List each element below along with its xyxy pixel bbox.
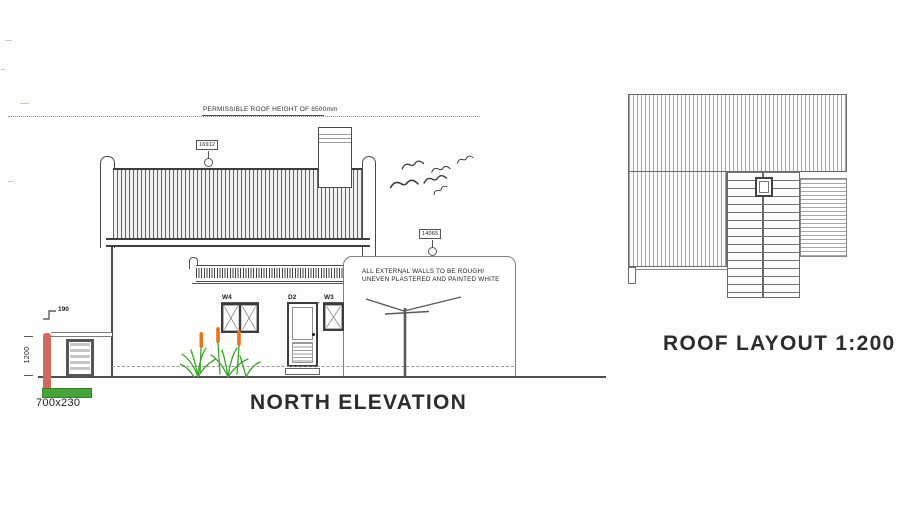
door-handle bbox=[312, 333, 315, 336]
level-marker-ridge-circle bbox=[204, 158, 213, 167]
scan-artifact bbox=[5, 40, 12, 41]
coping-step-symbol bbox=[43, 309, 57, 321]
roof-plan-chimney bbox=[755, 177, 773, 197]
level-marker-extension-leader bbox=[432, 240, 433, 247]
dim-tick bbox=[24, 375, 33, 376]
door-louver-panel bbox=[292, 342, 313, 363]
coping-height-dim: 190 bbox=[58, 306, 69, 313]
roof-plan-left-section bbox=[628, 172, 727, 267]
dim-tick bbox=[24, 336, 33, 337]
door-d2-label: D2 bbox=[288, 294, 296, 301]
veranda-roof bbox=[196, 265, 345, 282]
elevation-title: NORTH ELEVATION bbox=[250, 391, 467, 415]
wall-finish-note-line1: ALL EXTERNAL WALLS TO BE ROUGH/ bbox=[362, 268, 484, 275]
boundary-wall-coping bbox=[51, 332, 112, 337]
boundary-gate bbox=[66, 339, 94, 377]
door-threshold bbox=[285, 368, 320, 375]
window-w3-label: W3 bbox=[324, 294, 334, 301]
chimney bbox=[318, 127, 352, 188]
door-glass-panel bbox=[292, 307, 313, 340]
scan-artifact bbox=[8, 181, 13, 182]
clothesline bbox=[358, 293, 470, 378]
level-marker-ridge-leader bbox=[208, 151, 209, 158]
scan-artifact bbox=[20, 103, 29, 104]
door-d2 bbox=[287, 302, 318, 367]
roof-plan-eave-line bbox=[628, 269, 727, 270]
permissible-height-note: PERMISSIBLE ROOF HEIGHT OF 8500mm bbox=[203, 106, 338, 113]
ground-line bbox=[38, 376, 606, 378]
plants-illustration bbox=[180, 326, 262, 378]
window-w3 bbox=[323, 303, 344, 331]
level-marker-extension: 14065 bbox=[419, 229, 441, 239]
roof-layout-title: ROOF LAYOUT 1:200 bbox=[663, 332, 896, 356]
permissible-height-line bbox=[8, 116, 480, 117]
level-marker-extension-circle bbox=[428, 247, 437, 256]
foundation-size-label: 700x230 bbox=[36, 397, 80, 409]
scan-artifact bbox=[1, 69, 5, 70]
roof-plan-right-section bbox=[800, 178, 847, 257]
left-wall-line bbox=[111, 246, 113, 377]
veranda-bottom-edge bbox=[192, 283, 350, 284]
birds-illustration bbox=[383, 150, 483, 205]
roof-fascia bbox=[106, 238, 370, 247]
roof-plan-top-section bbox=[628, 94, 847, 172]
roof-plan-corner-notch bbox=[628, 267, 636, 284]
level-marker-ridge: 16912 bbox=[196, 140, 218, 150]
wall-finish-note: ALL EXTERNAL WALLS TO BE ROUGH/ UNEVEN P… bbox=[362, 268, 500, 283]
architectural-drawing-sheet: PERMISSIBLE ROOF HEIGHT OF 8500mm ALL EX… bbox=[0, 0, 899, 506]
wall-height-dim: 1200 bbox=[24, 339, 34, 371]
permissible-note-underline bbox=[202, 115, 324, 116]
wall-finish-note-line2: UNEVEN PLASTERED AND PAINTED WHITE bbox=[362, 276, 500, 283]
wall-section-red bbox=[43, 333, 51, 388]
window-w4-label: W4 bbox=[222, 294, 232, 301]
